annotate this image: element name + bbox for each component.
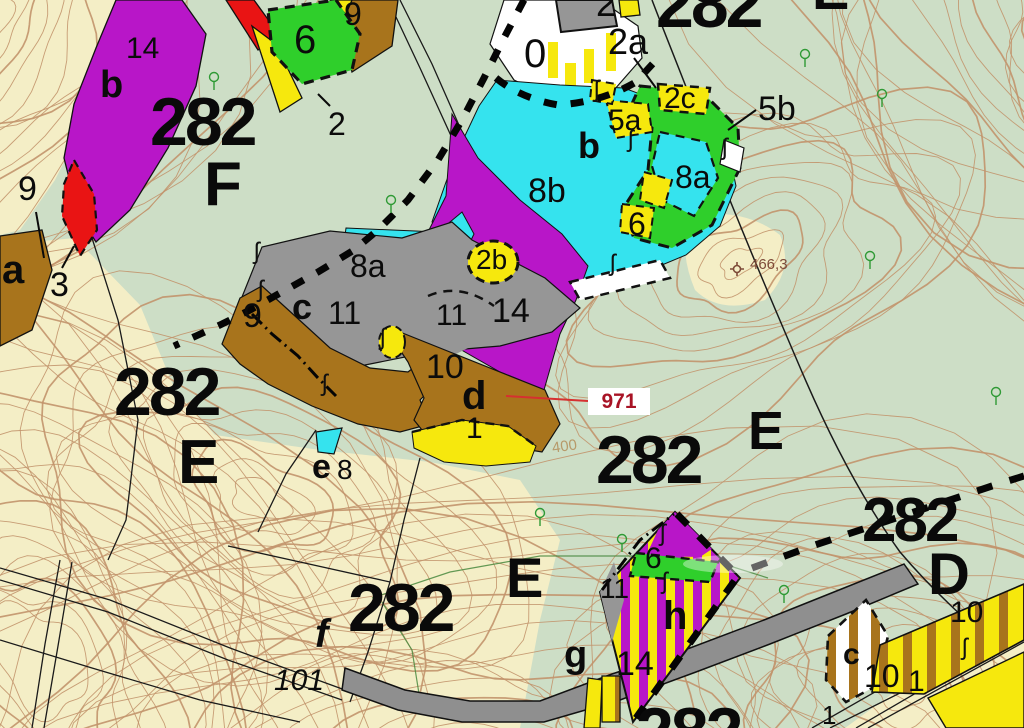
sector-label-282e-bottom-num: 282 — [348, 574, 452, 642]
sector-label-282e-left-num: 282 — [114, 358, 218, 426]
sector-label-282e-top-sup: E — [812, 0, 846, 18]
parcel-label: 5b — [758, 92, 796, 126]
parcel-label: 101 — [274, 666, 324, 696]
sector-label-282f-letter: F — [204, 154, 239, 216]
sector-label-282e-mid-sup: E — [748, 404, 781, 458]
parcel-label: 14 — [616, 647, 654, 681]
stream-symbol: ʃ — [610, 252, 615, 276]
parcel-label: 9 — [18, 172, 37, 206]
parcel-label: 6 — [645, 544, 662, 574]
parcel-label: 11 — [600, 575, 629, 603]
parcel-label: 10 — [950, 598, 983, 628]
stream-symbol: ʃ — [662, 570, 667, 594]
stream-symbol: ʃ — [628, 128, 633, 152]
parcel-label: 2b — [476, 246, 507, 274]
parcel-label: 10 — [864, 660, 900, 692]
parcel-label: e — [312, 450, 331, 484]
stream-symbol: ʃ — [322, 372, 327, 396]
parcel-label: c — [843, 640, 860, 670]
parcel-label: 1 — [466, 414, 483, 444]
parcel-label: 6 — [294, 20, 316, 60]
parcel-label: h — [663, 596, 687, 636]
parcel-label: 8a — [350, 250, 386, 282]
parcel-label: b — [578, 128, 600, 164]
parcel-yellow-sq[interactable] — [619, 0, 640, 17]
parcel-label: 2a — [608, 24, 648, 60]
parcel-label: 10 — [426, 350, 464, 384]
parcel-label: 2 — [328, 108, 346, 140]
map-viewport[interactable]: 282 F 282 E 282 E 282 E 282 E 282 282 D … — [0, 0, 1024, 728]
stream-symbol: ʃ — [962, 636, 967, 660]
parcel-label: 5a — [608, 106, 641, 136]
watermark — [683, 555, 783, 573]
parcel-label: 6 — [628, 208, 646, 240]
parcel-label: 1 — [908, 667, 925, 697]
parcel-label: 1 — [822, 702, 836, 728]
stream-symbol: ʃ — [660, 522, 665, 546]
parcel-label: 2c — [664, 84, 696, 114]
sector-label-282e-left-letter: E — [178, 432, 216, 494]
parcel-label: f — [315, 614, 328, 654]
sector-label-282-bottom-cut: 282 — [636, 698, 740, 728]
parcel-label: 14 — [126, 34, 159, 64]
stream-symbol: ʃ — [380, 326, 385, 350]
contour-value-label: 400 — [551, 436, 578, 456]
annotation-971[interactable]: 971 — [588, 388, 650, 415]
parcel-label: 8a — [675, 161, 711, 193]
parcel-label: d — [462, 376, 486, 416]
sector-label-282e-mid-num: 282 — [596, 426, 700, 494]
parcel-label: 8 — [337, 456, 353, 484]
parcel-label: g — [564, 636, 587, 674]
parcel-label: a — [2, 250, 24, 290]
parcel-label: 11 — [328, 297, 361, 329]
sector-label-282f-num: 282 — [150, 88, 254, 156]
parcel-label: 11 — [436, 301, 467, 331]
parcel-label: 14 — [492, 294, 530, 328]
elevation-label: 466,3 — [750, 256, 788, 273]
parcel-label: 9 — [243, 299, 262, 333]
stream-symbol: ʃ — [254, 240, 259, 264]
parcel-label: 8b — [528, 174, 566, 208]
stream-symbol: ʃ — [594, 78, 599, 102]
stream-symbol: ʃ — [722, 136, 727, 160]
sector-label-282e-top-num: 282 — [656, 0, 760, 38]
parcel-label: 0 — [524, 34, 546, 74]
stream-symbol: ʃ — [258, 278, 263, 302]
parcel-label: c — [292, 289, 312, 325]
parcel-label: 2 — [596, 0, 616, 22]
parcel-label: b — [100, 66, 123, 104]
parcel-label: 9 — [344, 0, 362, 30]
parcel-label: 3 — [50, 268, 69, 302]
sector-label-282e-bottom-sup: E — [506, 550, 540, 606]
